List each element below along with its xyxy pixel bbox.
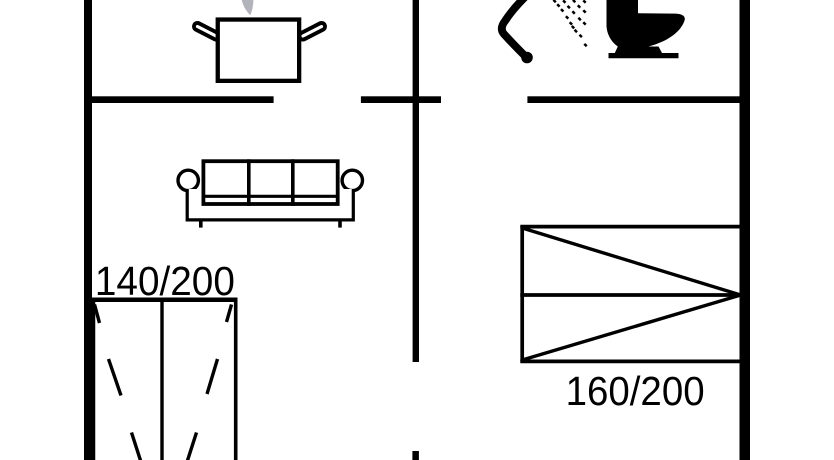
svg-text:140/200: 140/200: [95, 258, 235, 304]
svg-text:160/200: 160/200: [566, 368, 705, 414]
